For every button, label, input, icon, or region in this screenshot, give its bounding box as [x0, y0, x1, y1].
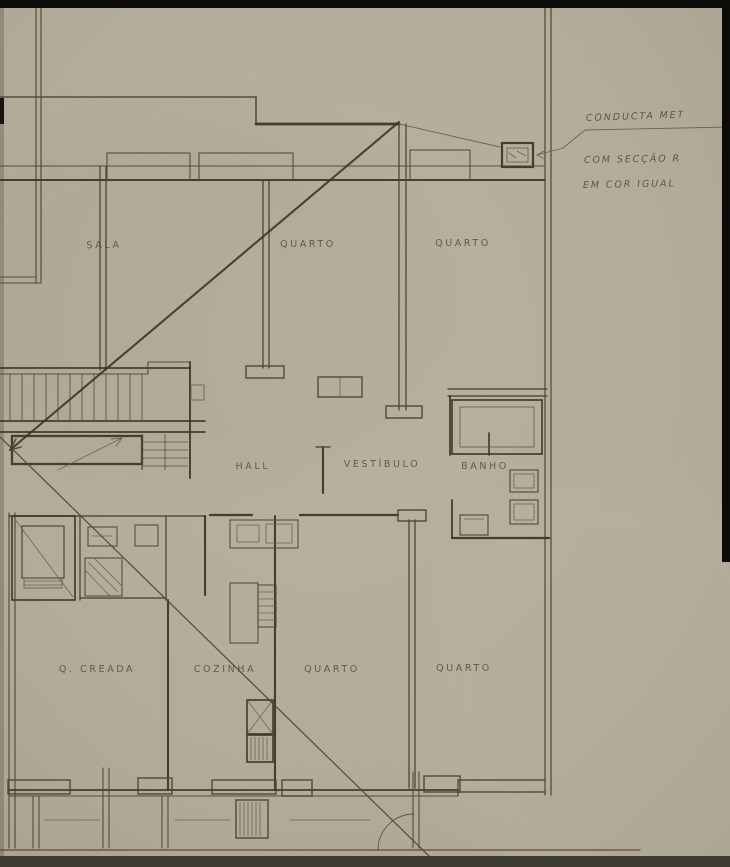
- room-label: BANHO: [461, 461, 509, 472]
- room-label: QUARTO: [280, 239, 336, 250]
- room-label: HALL: [236, 461, 271, 473]
- scan-edge-top: [0, 0, 730, 8]
- paper-background: [0, 0, 730, 867]
- room-label: QUARTO: [304, 664, 360, 675]
- blueprint-scan: SALAQUARTOQUARTOHALLVESTÍBULOBANHOQ. CRE…: [0, 0, 730, 867]
- room-label: QUARTO: [436, 663, 492, 674]
- room-label: VESTÍBULO: [344, 458, 420, 470]
- annotation-text: EM COR IGUAL: [583, 178, 676, 191]
- floor-plan-drawing: SALAQUARTOQUARTOHALLVESTÍBULOBANHOQ. CRE…: [0, 0, 730, 867]
- room-label: QUARTO: [435, 238, 491, 249]
- scan-edge-bottom: [0, 856, 730, 867]
- room-label: COZINHA: [194, 664, 256, 675]
- room-label: SALA: [86, 240, 121, 252]
- scan-edge-left-notch: [0, 98, 4, 124]
- scan-edge-right: [722, 0, 730, 562]
- annotation-text: COM SECÇÃO R: [584, 153, 681, 166]
- room-label: Q. CREADA: [59, 664, 135, 675]
